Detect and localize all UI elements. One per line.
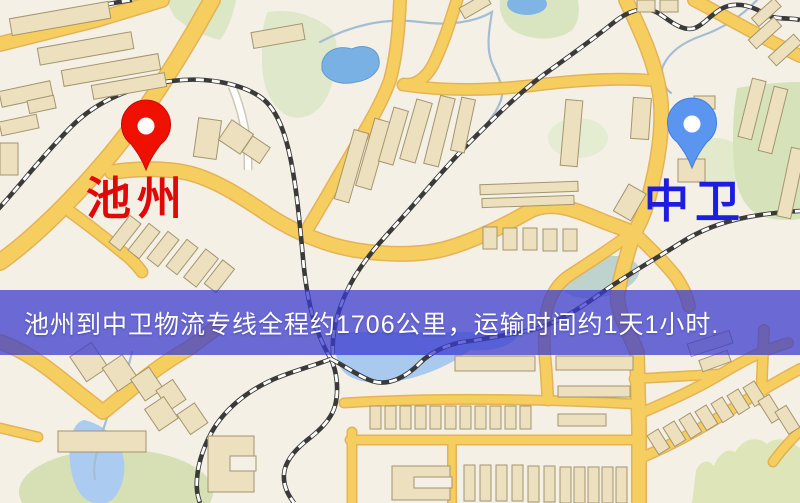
route-info-banner: 池州到中卫物流专线全程约1706公里，运输时间约1天1小时. <box>0 290 800 355</box>
map-canvas[interactable]: 池州 中卫 池州到中卫物流专线全程约1706公里，运输时间约1天1小时. <box>0 0 800 503</box>
map-image <box>0 0 800 503</box>
destination-city-label: 中卫 <box>644 180 746 225</box>
route-info-text: 池州到中卫物流专线全程约1706公里，运输时间约1天1小时. <box>24 305 719 341</box>
origin-city-label: 池州 <box>86 177 188 222</box>
